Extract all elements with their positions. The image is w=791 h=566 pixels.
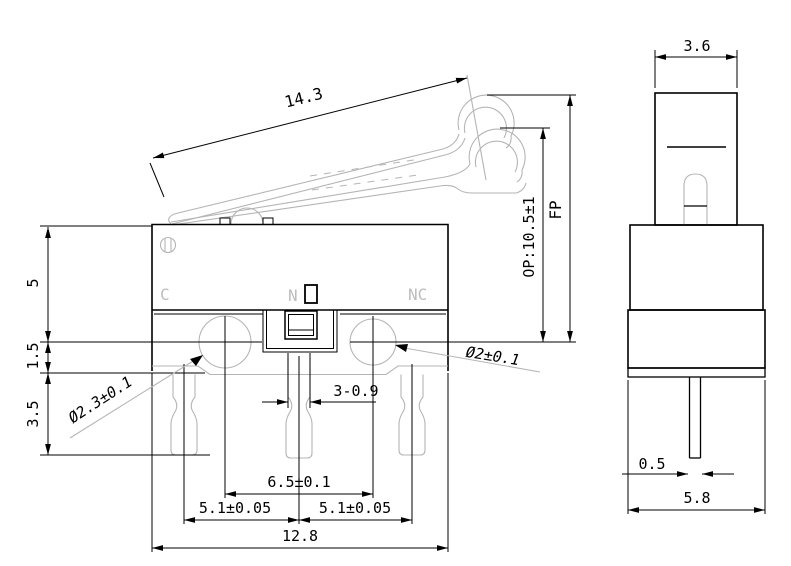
dim-lever-width: 3.6 <box>655 37 737 88</box>
leader-right-hole: Ø2±0.1 <box>395 343 540 372</box>
dim-right-hole-text: Ø2±0.1 <box>465 343 521 369</box>
dim-pin-pitch-right-text: 5.1±0.05 <box>319 499 391 517</box>
label-common: C <box>160 285 170 304</box>
switch-body <box>152 225 448 375</box>
rivet <box>161 238 176 253</box>
no-indicator-square <box>305 285 317 303</box>
dim-body-depth: 5.8 <box>628 380 765 514</box>
side-view: 3.6 0.5 5.8 <box>622 37 765 514</box>
dim-op-text: OP:10.5±1 <box>520 196 538 277</box>
side-body-upper <box>630 225 763 310</box>
label-nc: NC <box>408 285 427 304</box>
side-body-lower <box>628 310 765 368</box>
leader-left-hole: Ø2.3±0.1 <box>65 355 203 438</box>
dim-pin-pitch: 5.1±0.05 5.1±0.05 <box>184 499 412 520</box>
side-lever <box>655 93 737 225</box>
dim-body-width: 12.8 <box>152 527 448 548</box>
dim-body-width-text: 12.8 <box>282 527 318 545</box>
top-stop-left <box>220 218 230 225</box>
dim-lever-width-text: 3.6 <box>683 37 710 55</box>
dim-hole-pitch: 6.5±0.1 <box>225 473 373 494</box>
dim-hole-to-base: 1.5 <box>24 342 42 369</box>
label-no: N <box>288 286 298 305</box>
dim-pin-thickness-text: 0.5 <box>638 455 665 473</box>
front-view: C N NC <box>24 75 576 552</box>
dim-pin-pitch-left-text: 5.1±0.05 <box>199 499 271 517</box>
side-base-plate <box>628 368 765 377</box>
top-stop-right <box>263 218 273 225</box>
dim-pin-thickness: 0.5 <box>622 455 734 474</box>
dim-body-depth-text: 5.8 <box>683 489 710 507</box>
dim-chain-left: 5 1.5 3.5 <box>24 227 48 455</box>
dim-pin-width: 3-0.9 <box>262 382 379 402</box>
lever-arm <box>169 95 526 225</box>
dim-lever-length: 14.3 <box>153 78 467 158</box>
dim-base-to-pin: 3.5 <box>24 400 42 427</box>
dim-pin-width-text: 3-0.9 <box>333 382 378 400</box>
micro-switch-technical-drawing: C N NC <box>0 0 791 566</box>
dim-fp-text: FP <box>546 200 565 219</box>
side-pin <box>690 377 701 458</box>
dim-op-fp: OP:10.5±1 FP <box>520 95 570 342</box>
side-plunger <box>684 174 707 225</box>
dim-lever-length-text: 14.3 <box>283 84 325 112</box>
terminal-pins <box>171 358 425 458</box>
drawing-canvas: C N NC <box>0 0 791 566</box>
dim-top-to-hole: 5 <box>24 278 42 287</box>
dim-hole-pitch-text: 6.5±0.1 <box>267 473 330 491</box>
